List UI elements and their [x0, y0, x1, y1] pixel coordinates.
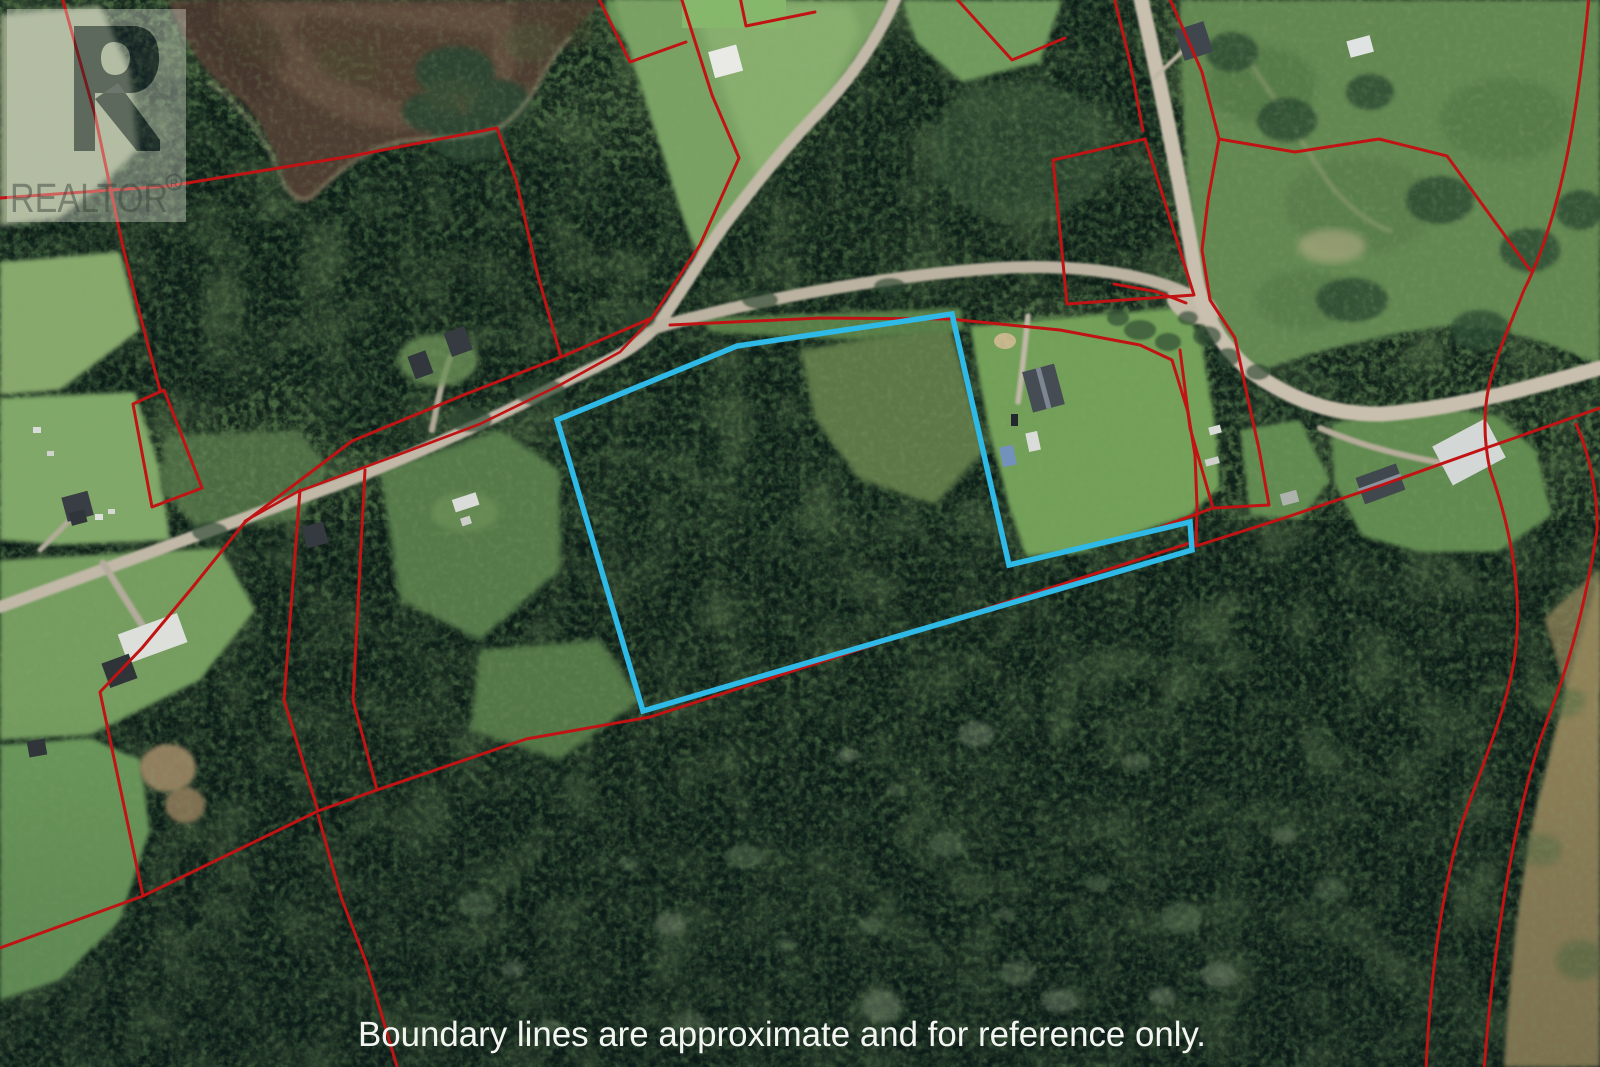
svg-text:R: R: [170, 178, 178, 190]
svg-text:Boundary lines are approximate: Boundary lines are approximate and for r…: [358, 1015, 1206, 1054]
svg-text:REALTOR: REALTOR: [10, 175, 168, 221]
